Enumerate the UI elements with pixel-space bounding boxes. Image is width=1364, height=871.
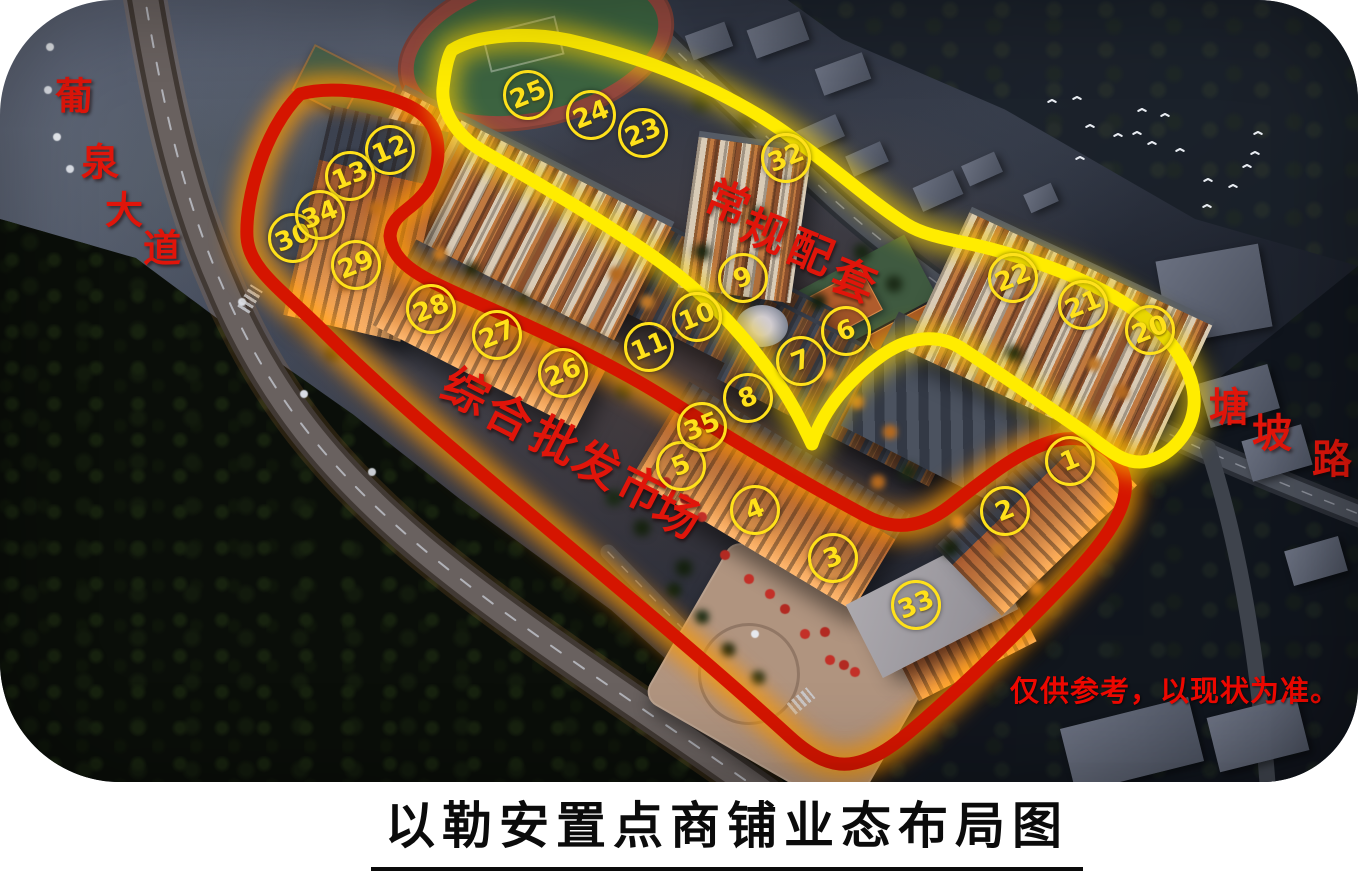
vignette (0, 0, 1358, 782)
page-title: 以勒安置点商铺业态布局图 (371, 786, 1083, 871)
title-bar: 以勒安置点商铺业态布局图 (0, 786, 1364, 871)
site-rendering: 葡泉大道常规配套综合批发市场塘坡路 1234567891011121320212… (0, 0, 1358, 782)
